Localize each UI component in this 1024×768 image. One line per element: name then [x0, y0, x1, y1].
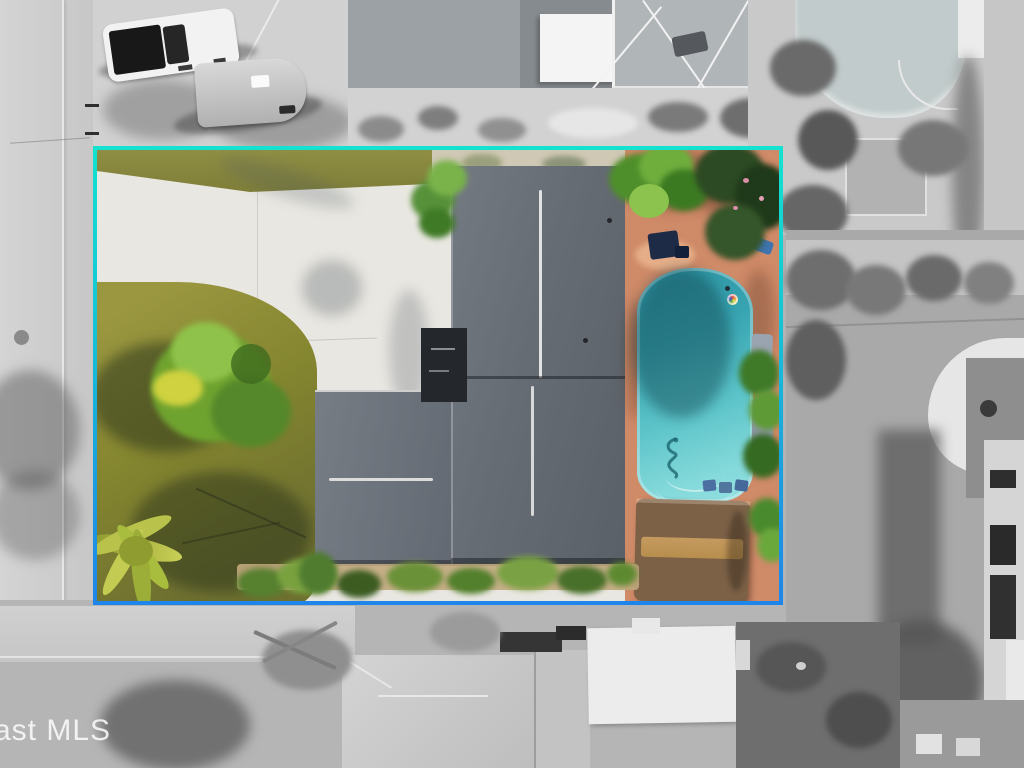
bush-gray: [648, 102, 708, 132]
foliage-dark: [705, 204, 765, 260]
tree-shadow: [0, 470, 80, 560]
shrub-strip-south: [237, 554, 639, 601]
mls-watermark: ast MLS: [0, 714, 111, 748]
bush-gray: [478, 118, 526, 142]
truck-bed-cover: [109, 24, 167, 75]
bush-yellow-fleck: [153, 370, 203, 406]
palm-dark: [100, 680, 250, 768]
alcove-detail: [429, 370, 449, 372]
manhole-cover: [14, 330, 29, 345]
ac-unit: [916, 734, 942, 754]
pool-tree-shadow: [631, 268, 731, 418]
house-shadow: [878, 430, 940, 645]
foliage-blob: [427, 160, 467, 196]
roof-mid-section: [534, 650, 590, 768]
roof-seam-shadow: [451, 376, 627, 379]
pool-float-dot: [725, 286, 730, 291]
window-dark: [990, 470, 1016, 488]
foliage-blob: [419, 208, 455, 238]
light-post: [736, 640, 750, 670]
palm-dark: [798, 110, 858, 170]
utility-trailer: [194, 56, 308, 128]
pool-float: [727, 294, 738, 305]
patio-chair-dark: [675, 246, 689, 258]
palm-dark: [756, 642, 826, 692]
ribbed-white-roof: [587, 626, 737, 725]
house-main-roof: [451, 166, 627, 566]
mailbox: [85, 104, 99, 107]
yellow-palm: [93, 498, 197, 602]
palm-center: [119, 536, 153, 566]
roof-vent: [583, 338, 588, 343]
window-dark: [990, 525, 1016, 565]
palm-top-center: [609, 146, 709, 244]
trailer-wheel: [279, 105, 296, 114]
sand-patch: [548, 108, 638, 138]
pool-chair-blue: [719, 482, 732, 493]
pink-flower: [743, 178, 749, 183]
pool-chair-blue: [702, 479, 716, 491]
foliage-blob: [743, 434, 783, 478]
bush-gray: [418, 106, 458, 130]
zone-northeast: [748, 0, 1024, 235]
house-wing-roof: [315, 390, 453, 566]
truck-cab-glass: [162, 24, 189, 65]
roof-ridge: [539, 190, 542, 378]
patio-feature: [980, 400, 997, 417]
foliage-blob: [629, 184, 669, 218]
roof-white-box: [632, 618, 660, 634]
hip-ridge: [378, 695, 488, 697]
thatch-shade: [726, 511, 748, 591]
pink-flower: [733, 206, 738, 210]
shrub: [387, 562, 443, 592]
screen-enclosure: [612, 0, 748, 88]
shrub: [337, 570, 381, 598]
property-boundary: [93, 146, 783, 605]
entry-alcove: [421, 328, 467, 402]
enclosure-furniture: [671, 31, 708, 58]
hedge: [846, 265, 906, 315]
foliage-blob: [749, 390, 783, 430]
palm-by-house: [411, 160, 471, 242]
small-bush: [299, 552, 337, 594]
bush-tree-dark: [211, 377, 291, 447]
aerial-photo: ast MLS: [0, 0, 1024, 768]
neighbor-house-south: [342, 655, 536, 768]
shrub: [607, 562, 637, 586]
pink-flower: [759, 196, 764, 201]
palm-dark: [826, 692, 892, 748]
light-speck: [796, 662, 806, 670]
pavement-northwest: [93, 0, 348, 146]
palm-dark: [770, 40, 836, 96]
tiki-hut: [634, 499, 751, 604]
hedge: [786, 250, 856, 310]
wing-ridge: [329, 478, 433, 481]
roof-dark-rect: [556, 626, 586, 640]
shrub: [447, 568, 495, 594]
trailer-vent: [251, 75, 270, 88]
shrub: [557, 566, 607, 594]
alcove-detail: [431, 348, 455, 350]
roof-dark-rect: [500, 632, 562, 652]
foliage-blob: [757, 528, 783, 562]
palm-gray: [430, 612, 500, 652]
palm-dark: [786, 320, 846, 400]
swimming-pool: [637, 268, 753, 502]
hedge: [906, 255, 962, 301]
gravel-southeast: [900, 700, 1024, 768]
bush-gray: [358, 116, 404, 142]
shrub: [497, 556, 559, 590]
scrub-strip-north: [348, 88, 790, 146]
foliage-blob: [739, 350, 779, 396]
hedge: [964, 262, 1014, 304]
roof-ridge: [531, 386, 534, 516]
plant-by-hut: [749, 498, 783, 568]
ac-unit: [956, 738, 980, 756]
palm-dark: [898, 120, 968, 176]
truck-wheel: [178, 64, 193, 71]
dark-yard-south: [736, 622, 900, 768]
window-dark: [990, 575, 1016, 639]
mailbox: [85, 132, 99, 135]
corner-foliage-northeast: [695, 146, 783, 284]
plants-east-edge: [739, 350, 783, 490]
palm-shadow-driveway: [302, 260, 362, 316]
pavement-crack: [10, 137, 90, 144]
bush-dark-spot: [231, 344, 271, 384]
